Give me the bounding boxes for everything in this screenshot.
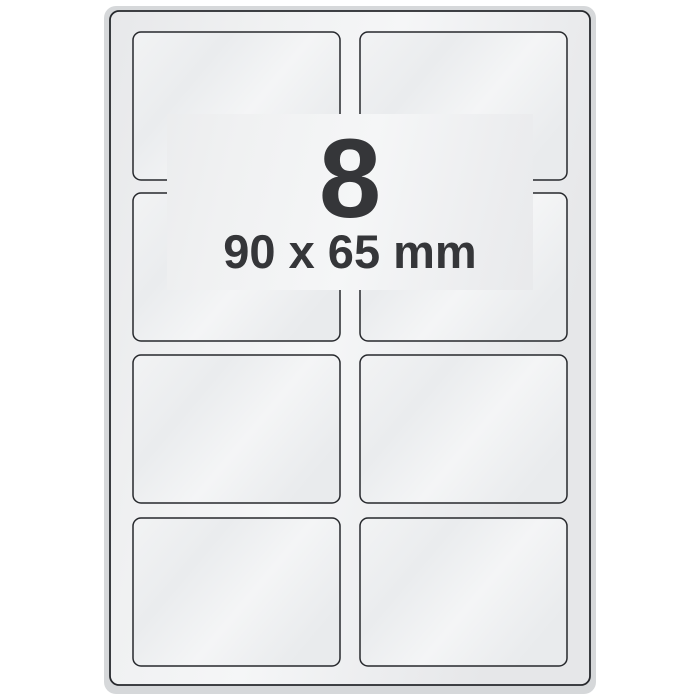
label-sheet-product-image: 8 90 x 65 mm (0, 0, 700, 700)
label-cell-r4c1 (133, 518, 340, 666)
label-cell-r3c2 (360, 355, 567, 503)
label-cell-r4c2 (360, 518, 567, 666)
label-cell-r1c1 (133, 32, 340, 180)
label-cell-r1c2 (360, 32, 567, 180)
label-cell-r3c1 (133, 355, 340, 503)
labels-per-sheet-count: 8 (319, 116, 381, 241)
label-dimensions-text: 90 x 65 mm (223, 225, 476, 278)
label-sheet-graphic: 8 90 x 65 mm (0, 0, 700, 700)
